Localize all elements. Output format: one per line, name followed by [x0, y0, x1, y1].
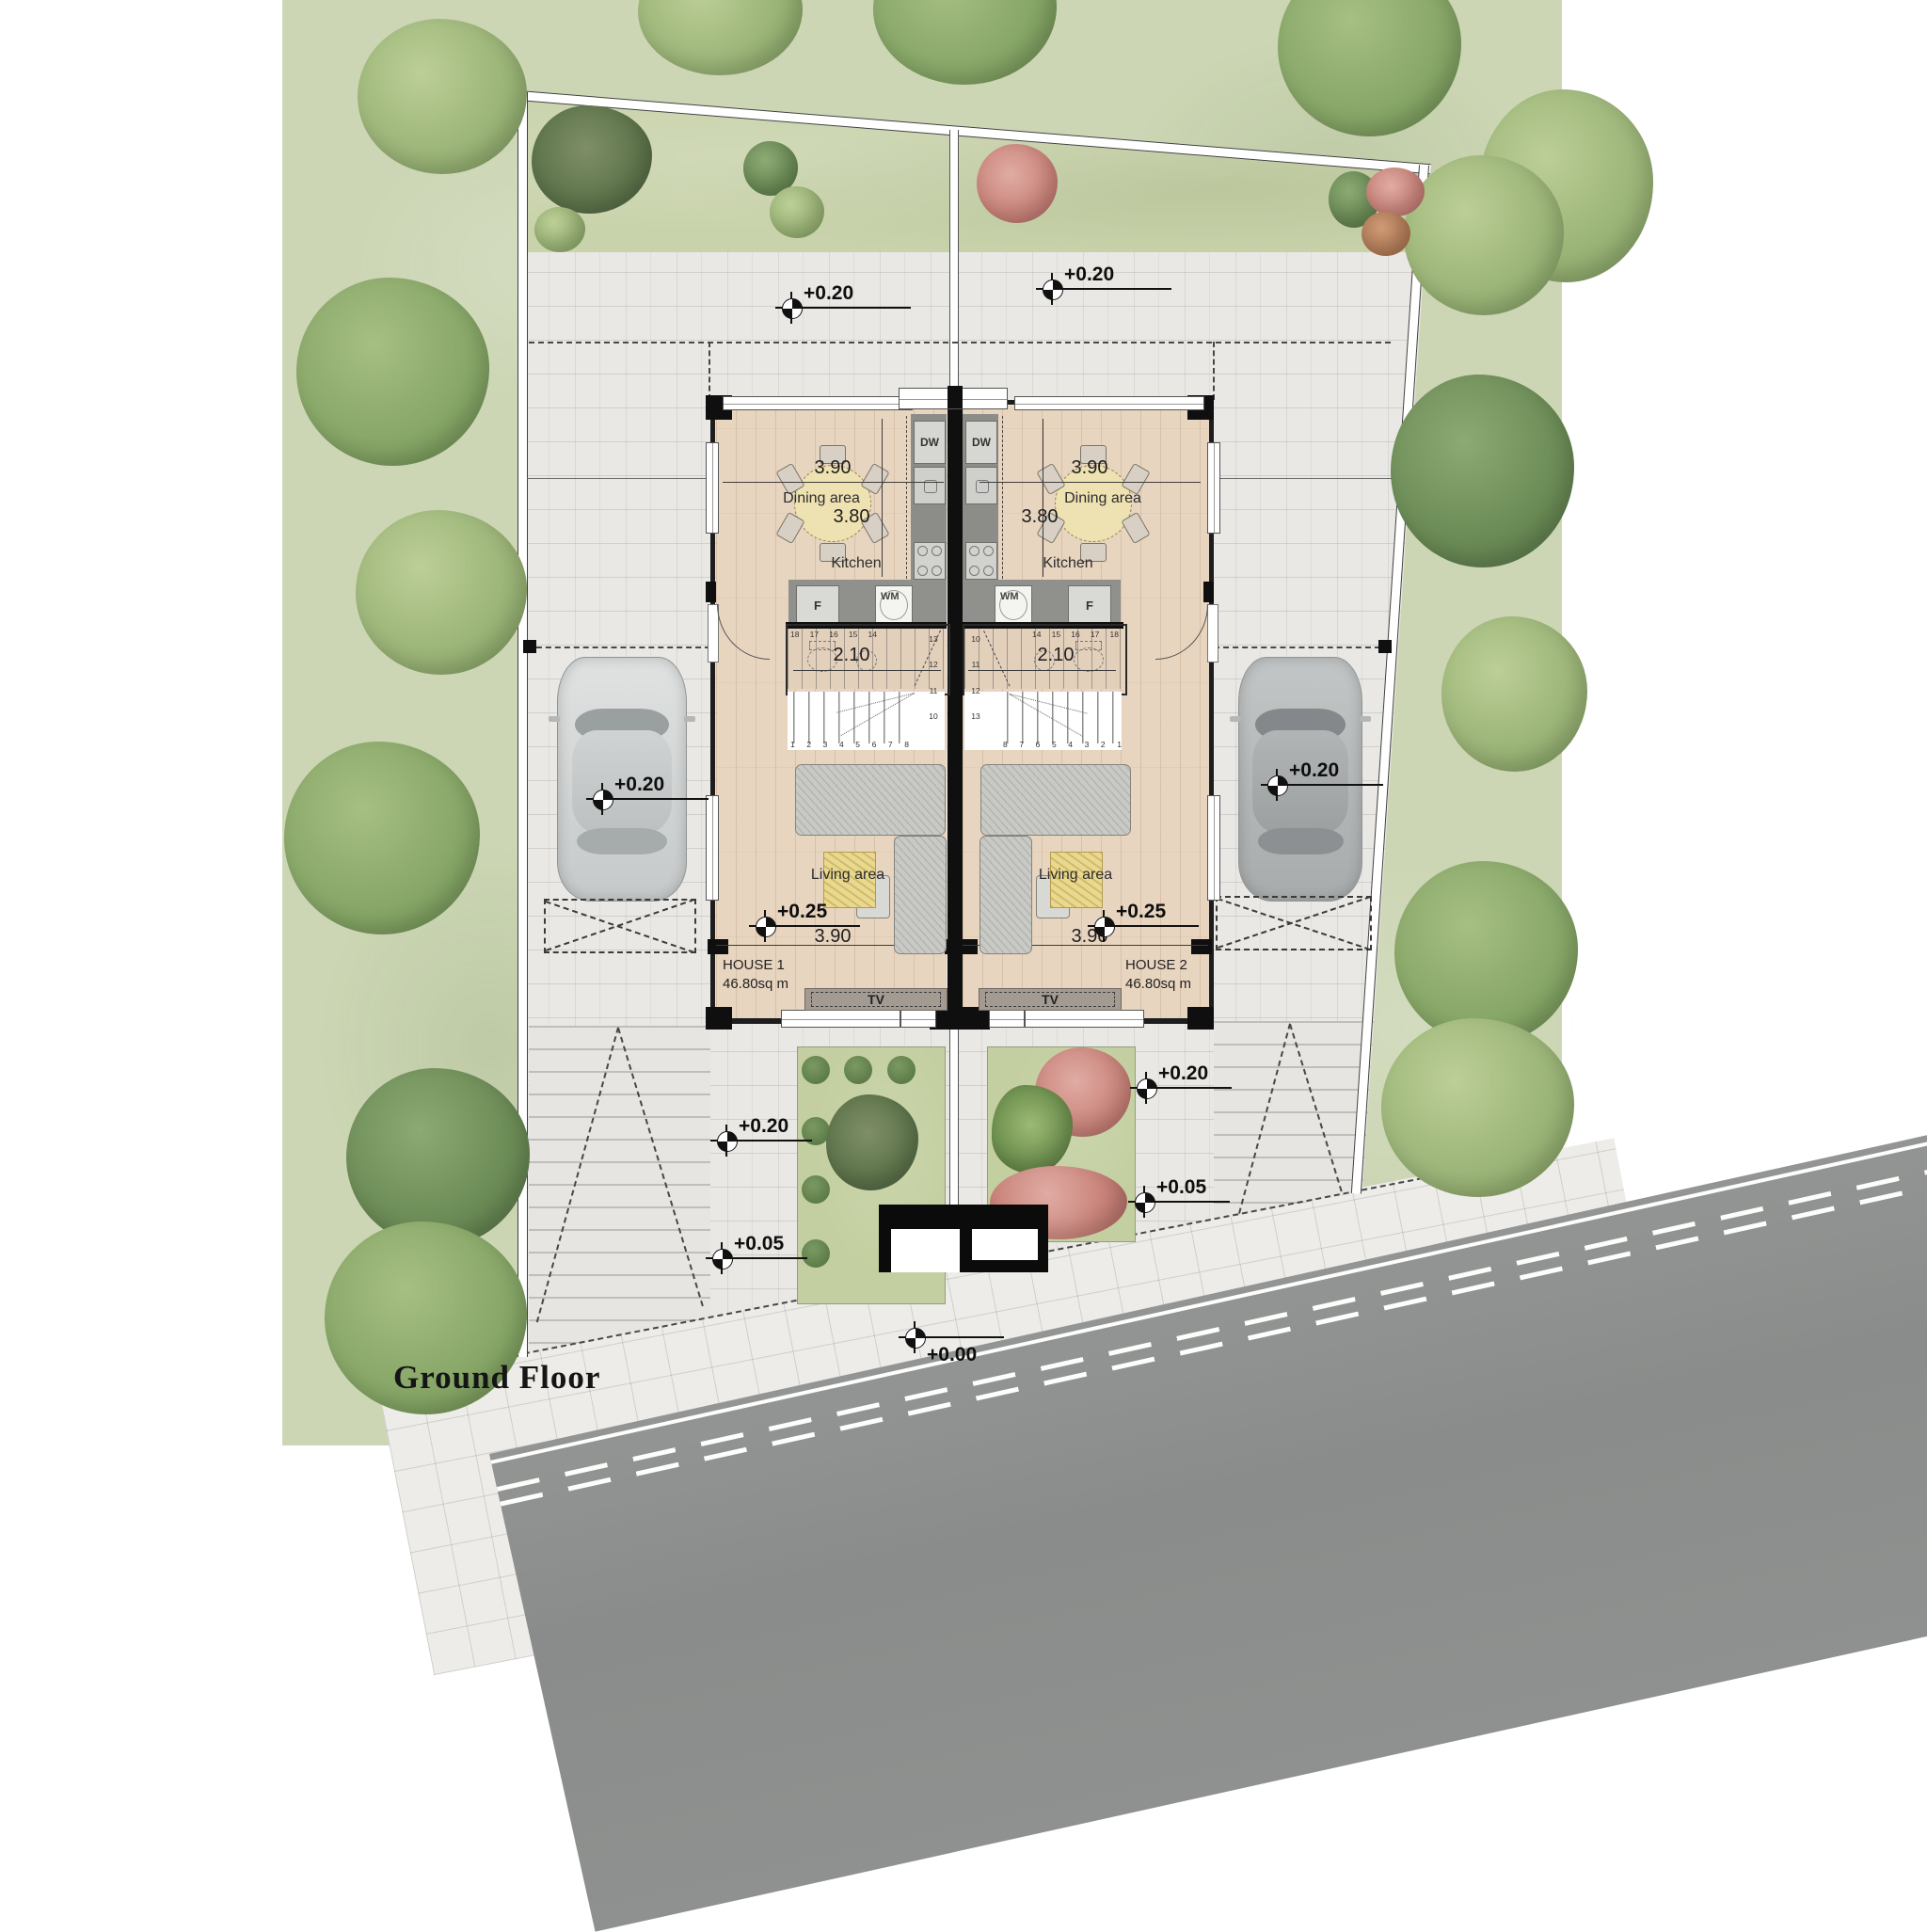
elevation-symbol — [1135, 1192, 1155, 1213]
elevation-symbol — [1267, 775, 1288, 796]
page-title: Ground Floor — [393, 1359, 600, 1397]
elevation-symbol — [1094, 917, 1115, 937]
elevation-label: +0.20 — [1158, 1062, 1208, 1085]
elevation-symbol — [800, 307, 911, 309]
elevation-symbol — [712, 1249, 733, 1269]
elevation-symbol — [735, 1140, 812, 1142]
elevation-symbol — [1112, 925, 1199, 927]
elevation-label: +0.05 — [1156, 1176, 1206, 1199]
elevation-label: +0.20 — [614, 774, 664, 796]
elevation-symbol — [1153, 1201, 1230, 1203]
elevation-symbol — [756, 917, 776, 937]
elevation-symbol — [923, 1336, 1004, 1338]
elevation-symbol — [1155, 1087, 1232, 1089]
elevation-symbol — [905, 1328, 926, 1349]
elevation-label: +0.20 — [1064, 263, 1114, 286]
elevation-markers-layer: +0.20+0.20+0.20+0.20+0.25+0.25+0.20+0.05… — [282, 0, 1562, 1445]
elevation-label: +0.25 — [777, 901, 827, 923]
elevation-label: +0.25 — [1116, 901, 1166, 923]
elevation-symbol — [1137, 1078, 1157, 1099]
site-plan: DW DW F WM WM F 1817161514 12345678 1312… — [282, 0, 1562, 1445]
elevation-symbol — [717, 1131, 738, 1152]
elevation-symbol — [730, 1257, 807, 1259]
elevation-symbol — [773, 925, 860, 927]
elevation-symbol — [611, 798, 709, 800]
elevation-symbol — [1285, 784, 1383, 786]
elevation-label: +0.05 — [734, 1233, 784, 1255]
elevation-label: +0.20 — [1289, 759, 1339, 782]
elevation-symbol — [1043, 279, 1063, 300]
elevation-symbol — [1060, 288, 1171, 290]
elevation-label: +0.20 — [804, 282, 853, 305]
elevation-symbol — [782, 298, 803, 319]
elevation-label: +0.20 — [739, 1115, 788, 1138]
elevation-symbol — [593, 790, 613, 810]
elevation-label: +0.00 — [927, 1344, 977, 1366]
